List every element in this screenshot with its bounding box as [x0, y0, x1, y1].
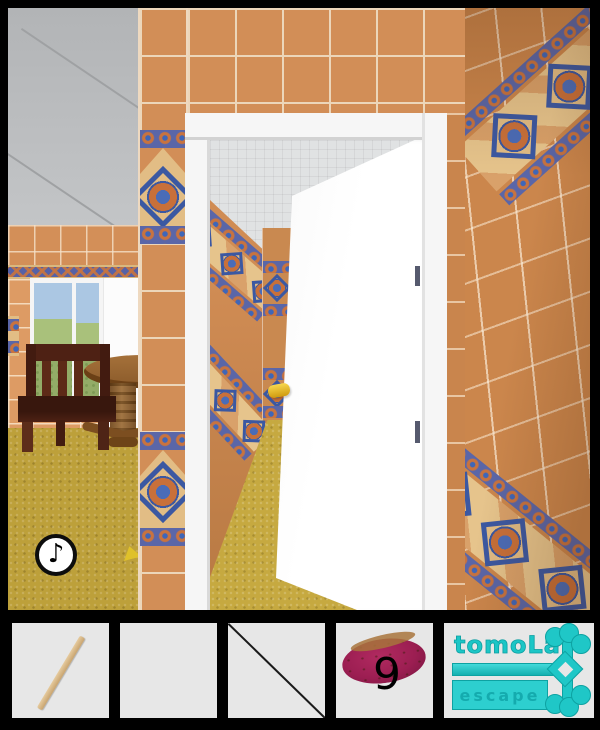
inventory-slot-2[interactable] [120, 623, 217, 718]
border-left [0, 0, 8, 612]
right-wall-band-lower [465, 432, 590, 612]
left-room-wall-upper [8, 225, 140, 267]
table-foot [108, 437, 138, 447]
door-frame-left [185, 113, 210, 612]
music-note-icon: ♪ [48, 541, 65, 567]
chair-post [100, 344, 110, 400]
window-sky [34, 283, 72, 319]
game-screen: ♪ 9 tomoLa escape [0, 0, 600, 730]
left-side-wall-band-fragment [8, 316, 19, 356]
border-right [590, 0, 600, 612]
inventory-slot-4[interactable]: 9 [336, 623, 433, 718]
border-bottom [0, 610, 600, 624]
right-wall [465, 8, 590, 612]
right-wall-band-upper [465, 8, 590, 205]
door-hinge [415, 421, 420, 443]
border-top [0, 0, 600, 8]
sound-toggle-button[interactable]: ♪ [35, 534, 77, 576]
logo-subtitle: escape [460, 686, 541, 705]
chair-post [26, 344, 36, 400]
doorway-opening[interactable] [210, 140, 422, 612]
logo-subtitle-box: escape [452, 680, 548, 710]
front-wall-right-strip [447, 113, 465, 612]
chair-top-rail [26, 344, 110, 361]
door-hinge [415, 266, 420, 286]
logo-button[interactable]: tomoLa escape [444, 623, 594, 718]
door-frame-right [422, 113, 447, 612]
inventory-slot-1[interactable] [12, 623, 109, 718]
left-room-deco-band [8, 265, 140, 279]
item-count: 9 [373, 649, 401, 700]
crossed-out-line [228, 623, 325, 718]
inventory-slot-3[interactable] [228, 623, 325, 718]
left-room-carpet [8, 428, 140, 612]
front-wall-top [188, 8, 465, 113]
window-grass [34, 319, 72, 347]
wooden-stick-item [37, 635, 85, 710]
left-room-ceiling [8, 8, 140, 225]
chair-seat [18, 396, 116, 422]
front-wall-column [138, 8, 188, 612]
door-frame-top [185, 113, 447, 140]
